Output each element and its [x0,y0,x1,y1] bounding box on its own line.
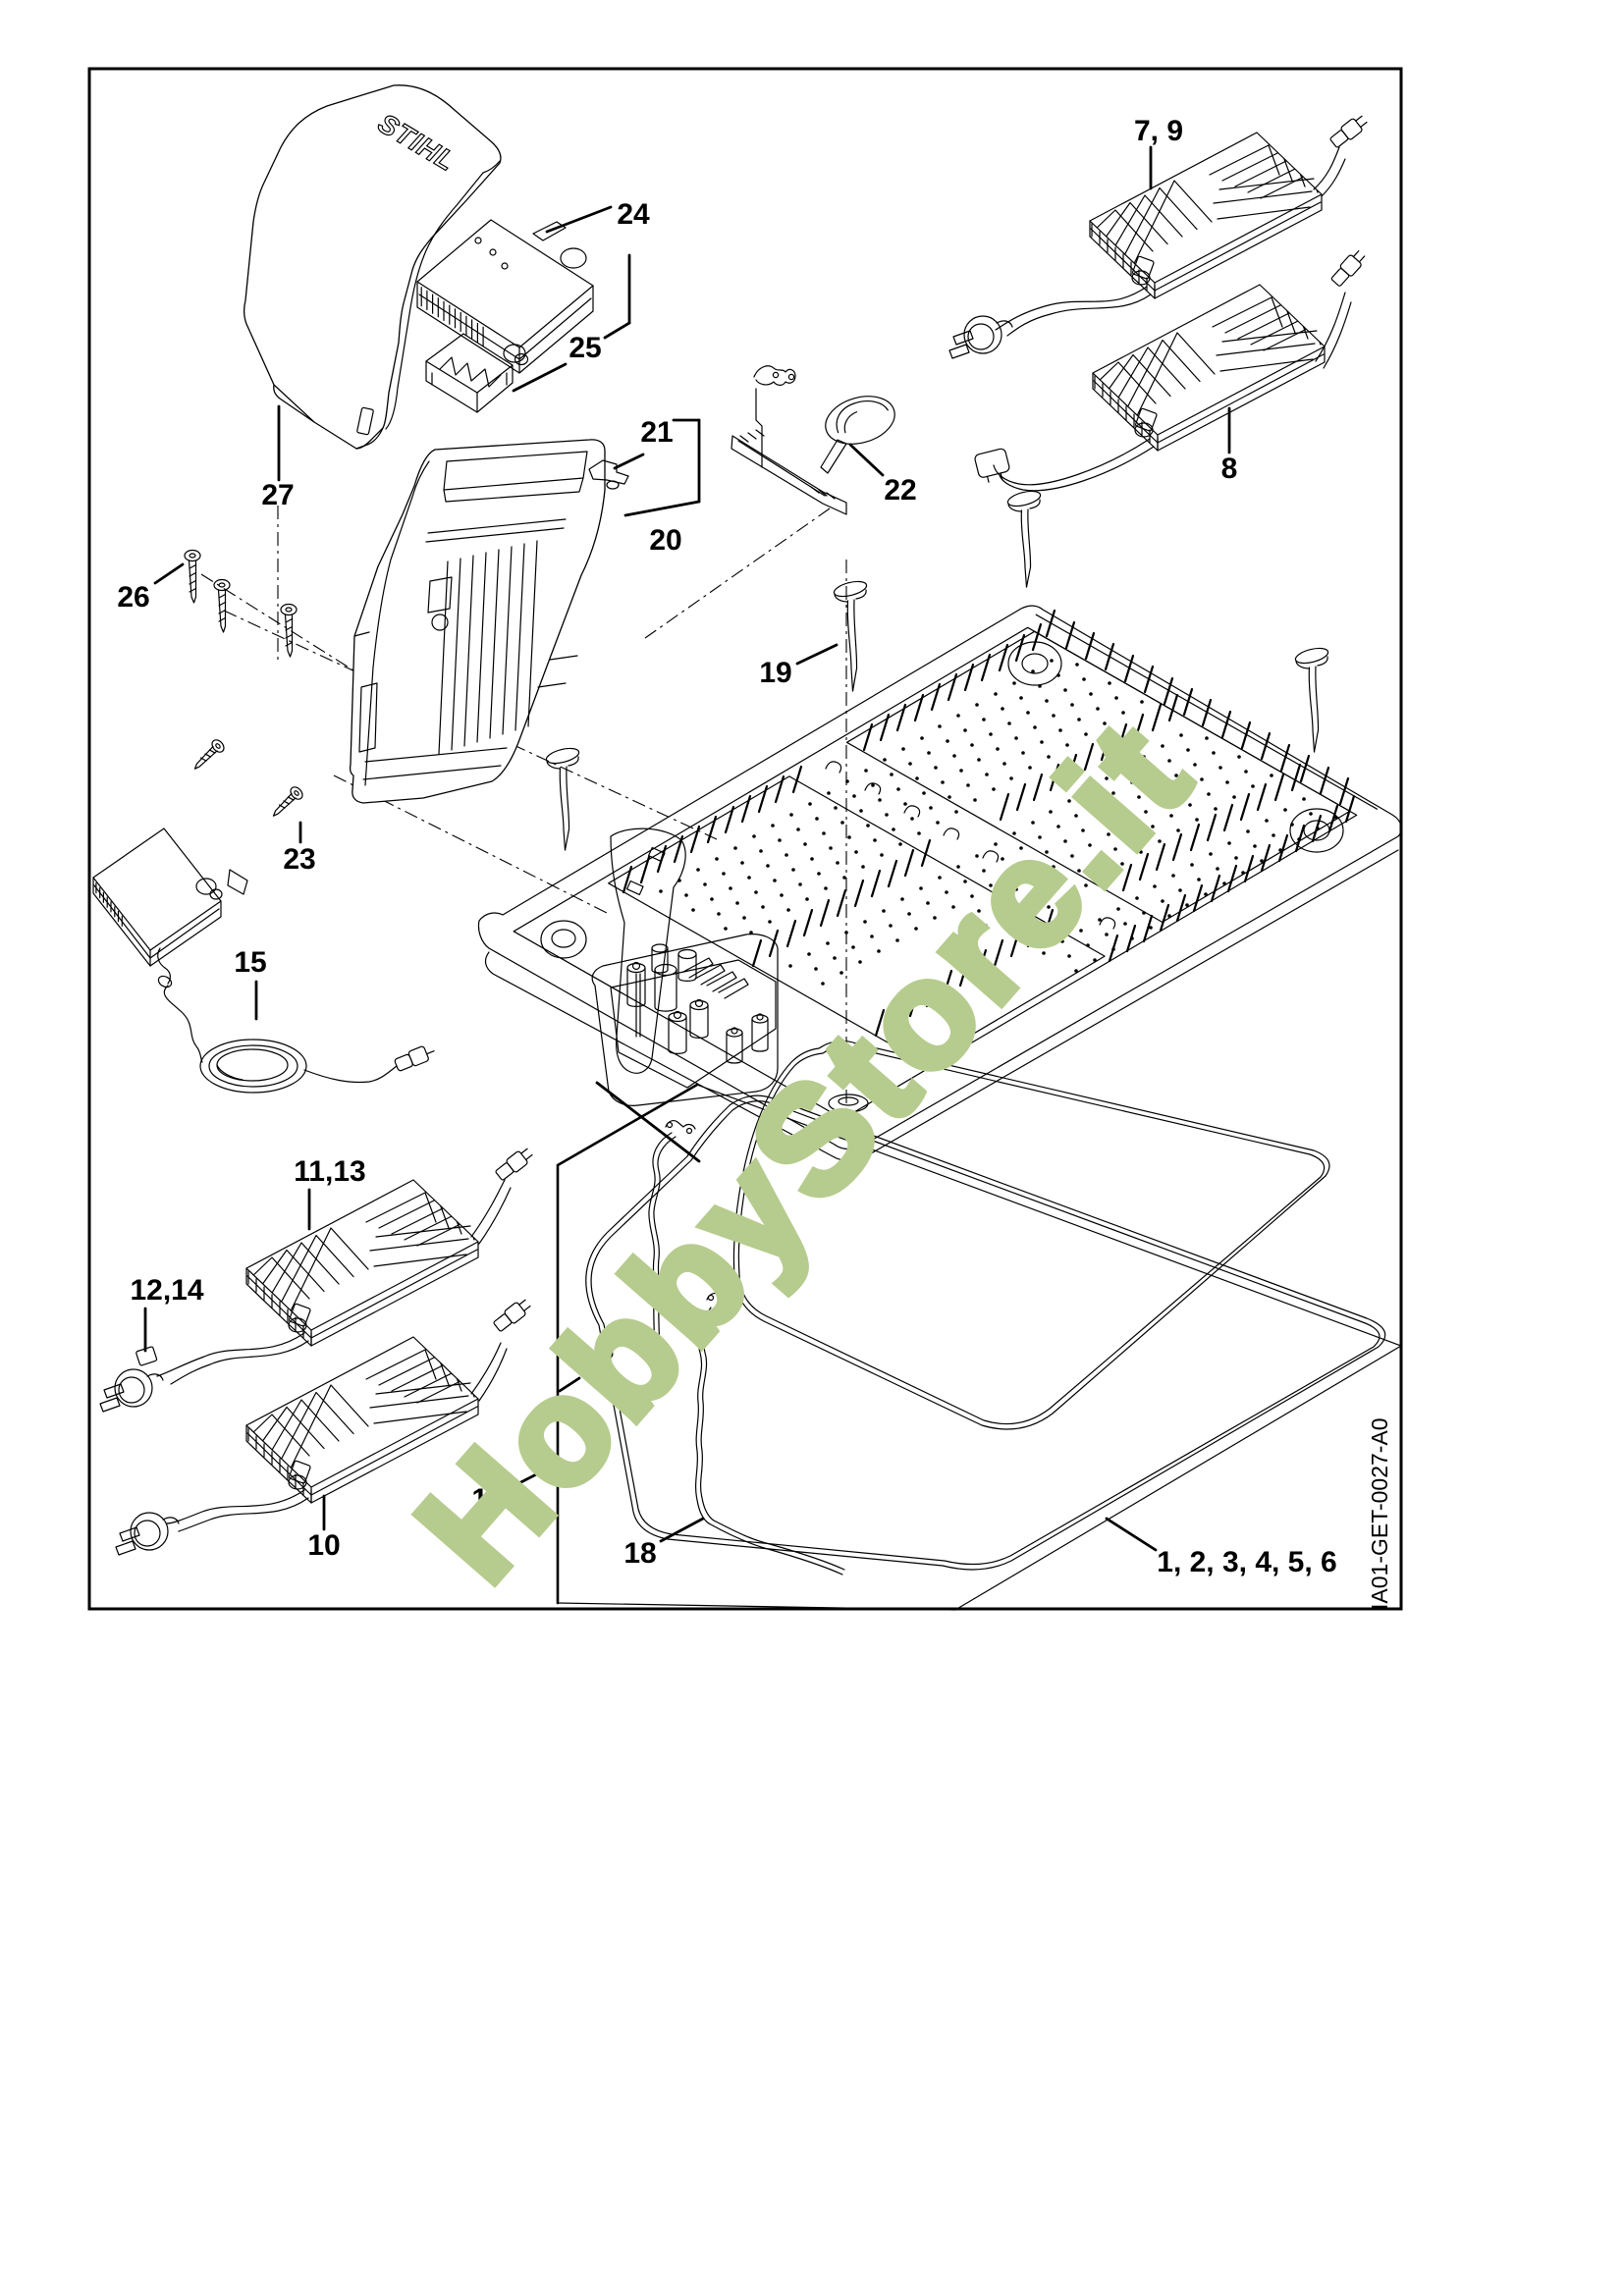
svg-text:22: 22 [884,474,916,507]
svg-text:7, 9: 7, 9 [1134,115,1183,147]
svg-text:1, 2, 3, 4, 5, 6: 1, 2, 3, 4, 5, 6 [1157,1546,1336,1578]
svg-text:IA01-GET-0027-A0: IA01-GET-0027-A0 [1367,1417,1392,1610]
svg-text:12,14: 12,14 [130,1274,203,1307]
svg-text:26: 26 [117,581,149,614]
svg-text:15: 15 [234,946,266,979]
svg-text:21: 21 [640,416,673,449]
svg-text:11,13: 11,13 [294,1155,365,1188]
svg-text:10: 10 [307,1529,340,1562]
svg-text:24: 24 [617,198,650,231]
svg-text:19: 19 [759,657,791,689]
svg-text:8: 8 [1221,453,1238,485]
svg-text:23: 23 [283,843,315,876]
svg-text:25: 25 [568,332,601,364]
svg-text:18: 18 [623,1537,656,1570]
svg-text:20: 20 [649,524,681,557]
